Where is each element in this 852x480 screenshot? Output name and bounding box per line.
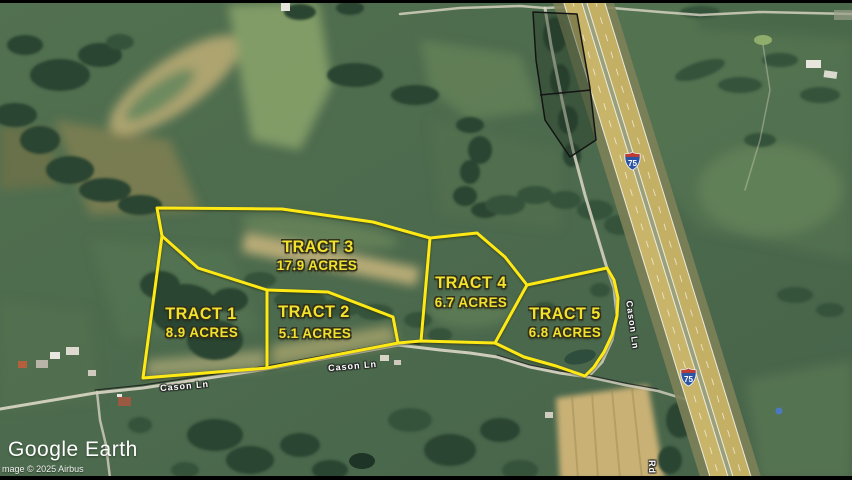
imagery-copyright: mage © 2025 Airbus (2, 464, 84, 474)
interstate-75-shield-north: 75 (624, 151, 641, 171)
tract-2-name: TRACT 2 (278, 302, 350, 322)
interstate-75-shield-south: 75 (680, 367, 697, 387)
shield-number-south: 75 (684, 375, 694, 384)
tract-1-acres: 8.9 ACRES (166, 324, 239, 340)
tract-5-name: TRACT 5 (529, 304, 601, 324)
tract-4-acres: 6.7 ACRES (435, 294, 508, 310)
tract-2-acres: 5.1 ACRES (279, 325, 352, 341)
tract-3-acres: 17.9 ACRES (277, 257, 357, 273)
google-earth-logo: Google Earth (8, 438, 138, 462)
boundary-tract3-4-divider (421, 238, 430, 341)
tract-1-name: TRACT 1 (165, 304, 237, 324)
tract-boundaries (0, 0, 852, 480)
letterbox-top (0, 0, 852, 3)
tract-5-acres: 6.8 ACRES (529, 324, 602, 340)
letterbox-bottom (0, 476, 852, 480)
shield-number-north: 75 (628, 159, 638, 168)
google-earth-viewport[interactable]: TRACT 1 8.9 ACRES TRACT 2 5.1 ACRES TRAC… (0, 0, 852, 480)
tract-4-name: TRACT 4 (435, 273, 507, 293)
rd-label-vertical: Rd (647, 460, 657, 474)
boundary-outer (143, 208, 618, 378)
boundary-tract1-top (162, 236, 267, 290)
tract-3-name: TRACT 3 (282, 237, 354, 257)
